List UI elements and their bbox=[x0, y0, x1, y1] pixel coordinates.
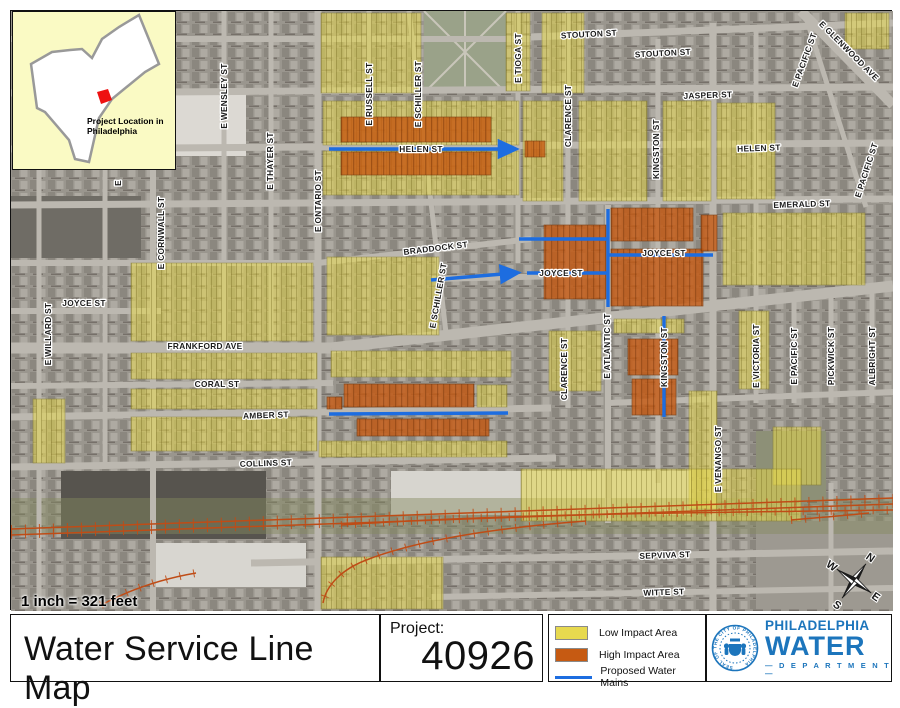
legend-item: Proposed Water Mains bbox=[555, 666, 705, 688]
street-label: E THAYER ST bbox=[265, 132, 275, 189]
street-label: AMBER ST bbox=[243, 409, 289, 421]
street-label: E TIOGA ST bbox=[513, 33, 523, 83]
street-label: HELEN ST bbox=[737, 142, 781, 154]
street-label: E ONTARIO ST bbox=[313, 170, 323, 232]
inset-caption-line1: Project Location in bbox=[87, 116, 164, 126]
scale-note: 1 inch = 321 feet bbox=[21, 593, 137, 610]
street-label: HELEN ST bbox=[399, 144, 442, 154]
philadelphia-outline-map bbox=[13, 12, 174, 168]
street-label: SEPVIVA ST bbox=[639, 549, 690, 561]
street-label: E bbox=[113, 180, 123, 186]
logo-line2: WATER bbox=[765, 633, 891, 660]
street-label: CORAL ST bbox=[195, 379, 240, 389]
street-label: CLARENCE ST bbox=[559, 338, 569, 400]
project-box: Project: 40926 bbox=[380, 614, 543, 682]
street-label: E ATLANTIC ST bbox=[602, 313, 612, 378]
street-label: E RUSSELL ST bbox=[364, 63, 374, 126]
street-label: JOYCE ST bbox=[642, 248, 685, 258]
street-label: JASPER ST bbox=[683, 89, 732, 101]
street-label: JOYCE ST bbox=[539, 268, 582, 278]
street-label: COLLINS ST bbox=[240, 457, 293, 469]
proposed-water-main bbox=[329, 413, 508, 414]
street-label: E WILLARD ST bbox=[43, 303, 53, 366]
street-label: JOYCE ST bbox=[62, 298, 105, 308]
city-outline bbox=[31, 15, 159, 162]
street-label: E WENSLEY ST bbox=[219, 63, 229, 128]
park bbox=[424, 11, 506, 93]
street-label: WITTE ST bbox=[643, 586, 684, 597]
street-label: E VENANGO ST bbox=[713, 426, 723, 492]
street-label: PICKWICK ST bbox=[826, 327, 836, 385]
street-label: ALBRIGHT ST bbox=[867, 326, 877, 385]
legend-line bbox=[555, 676, 592, 679]
street-label: E SCHILLER ST bbox=[413, 61, 423, 127]
street-segment bbox=[11, 383, 333, 386]
legend-box: Low Impact AreaHigh Impact AreaProposed … bbox=[548, 614, 706, 682]
legend-swatch bbox=[555, 626, 588, 640]
map-title: Water Service Line Map bbox=[11, 615, 379, 708]
logo-box: SEAL OF THE CITY OF PHILADELPHIA PHILADE… bbox=[706, 614, 892, 682]
inset-caption-line2: Philadelphia bbox=[87, 126, 164, 136]
logo-line1: PHILADELPHIA bbox=[765, 619, 891, 633]
street-label: KINGSTON ST bbox=[651, 119, 661, 179]
philadelphia-city-seal-icon: SEAL OF THE CITY OF PHILADELPHIA bbox=[711, 624, 759, 672]
street-label: CLARENCE ST bbox=[563, 85, 573, 147]
legend-label: Low Impact Area bbox=[599, 627, 677, 639]
project-number: 40926 bbox=[381, 634, 542, 679]
legend-item: High Impact Area bbox=[555, 644, 705, 666]
legend-item: Low Impact Area bbox=[555, 622, 705, 644]
street-label: KINGSTON ST bbox=[659, 327, 669, 387]
legend-label: High Impact Area bbox=[599, 649, 680, 661]
inset-caption: Project Location in Philadelphia bbox=[87, 116, 164, 136]
legend-label: Proposed Water Mains bbox=[600, 665, 705, 689]
water-service-line-map-page: { "inset": {"caption_line1": "Project Lo… bbox=[0, 0, 900, 695]
title-box: Water Service Line Map bbox=[10, 614, 380, 682]
legend-swatch bbox=[555, 648, 588, 662]
logo-wordmark: PHILADELPHIA WATER — D E P A R T M E N T… bbox=[765, 619, 891, 678]
logo-line3: — D E P A R T M E N T — bbox=[765, 662, 891, 677]
street-label: FRANKFORD AVE bbox=[168, 341, 243, 351]
street-label: E PACIFIC ST bbox=[789, 328, 799, 385]
street-label: E VICTORIA ST bbox=[751, 324, 761, 388]
map-canvas: STOUTON STSTOUTON STJASPER STHELEN STHEL… bbox=[10, 10, 892, 610]
street-label: E CORNWALL ST bbox=[156, 197, 166, 269]
street-label: EMERALD ST bbox=[773, 198, 830, 210]
location-inset-map: Project Location in Philadelphia bbox=[12, 11, 176, 170]
